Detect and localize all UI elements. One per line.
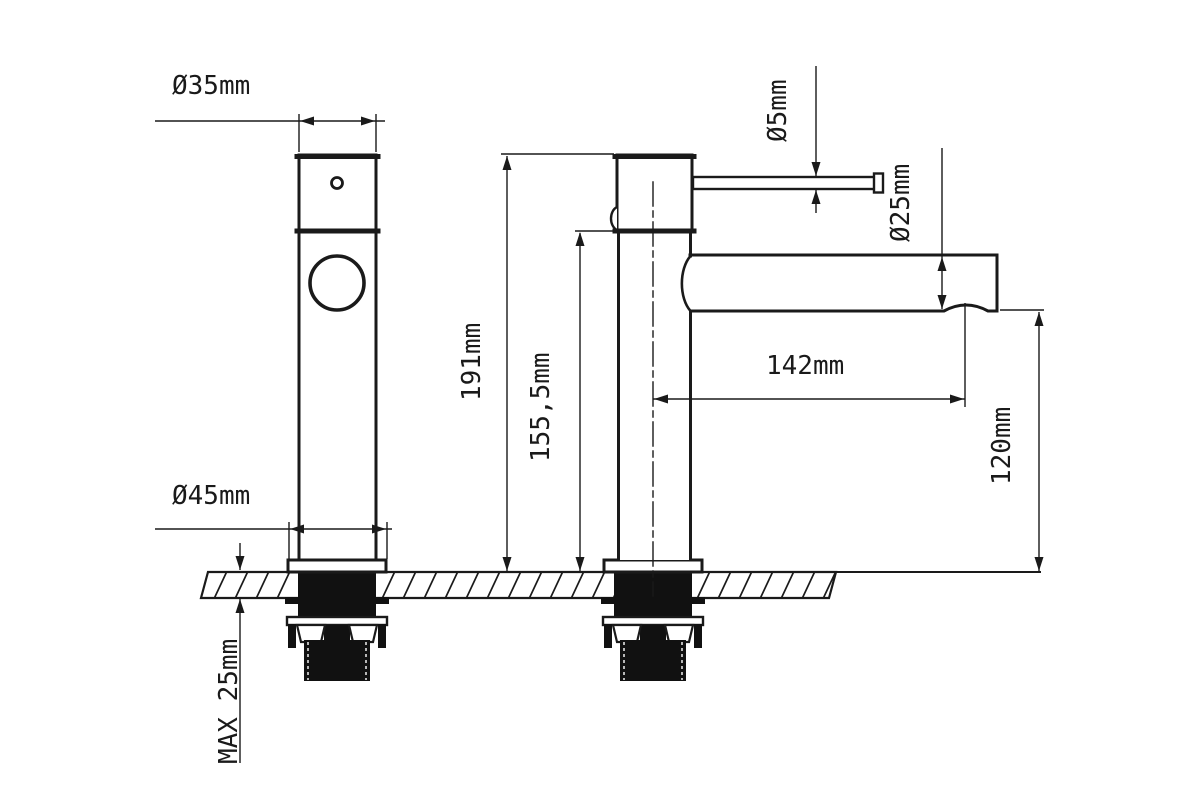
spout-fill	[690, 255, 997, 311]
dim-label-top-diameter: Ø35mm	[172, 71, 250, 101]
handle-lever-end-cap	[874, 174, 883, 193]
front-view-tailpiece	[285, 560, 389, 681]
dim-label-spout-diameter: Ø25mm	[886, 164, 916, 242]
side-view-tailpiece	[601, 560, 705, 681]
dimension-annotations: Ø35mm Ø45mm MAX 25mm 191mm	[155, 66, 1044, 764]
dim-label-spout-reach: 142mm	[766, 351, 844, 381]
dim-label-spout-clearance-height: 120mm	[987, 407, 1017, 485]
drawing-svg: Ø35mm Ø45mm MAX 25mm 191mm	[0, 0, 1200, 792]
countertop-hatch	[201, 572, 836, 598]
dim-top-diameter: Ø35mm	[155, 71, 385, 152]
dim-handle-rod-diameter: Ø5mm	[763, 66, 821, 213]
side-body-fill	[618, 231, 691, 560]
front-cartridge-circle	[310, 256, 364, 310]
front-body	[299, 155, 376, 560]
cap-left-bump-arc	[611, 207, 617, 230]
dim-height-under-spout-top: 155,5mm	[526, 231, 614, 571]
front-pin-hole	[332, 178, 343, 189]
dim-spout-reach: 142mm	[653, 303, 965, 407]
dim-label-base-diameter: Ø45mm	[172, 481, 250, 511]
handle-lever	[693, 177, 876, 189]
dim-label-max-mounting-thickness: MAX 25mm	[214, 639, 244, 764]
dim-label-height-under-spout-top: 155,5mm	[526, 352, 556, 462]
dim-label-total-height: 191mm	[457, 323, 487, 401]
dim-spout-clearance-height: 120mm	[987, 310, 1044, 571]
side-cap	[617, 155, 692, 231]
dim-label-handle-rod-diameter: Ø5mm	[763, 79, 793, 142]
faucet-technical-drawing: Ø35mm Ø45mm MAX 25mm 191mm	[0, 0, 1200, 792]
faucet-front-view	[297, 155, 378, 560]
